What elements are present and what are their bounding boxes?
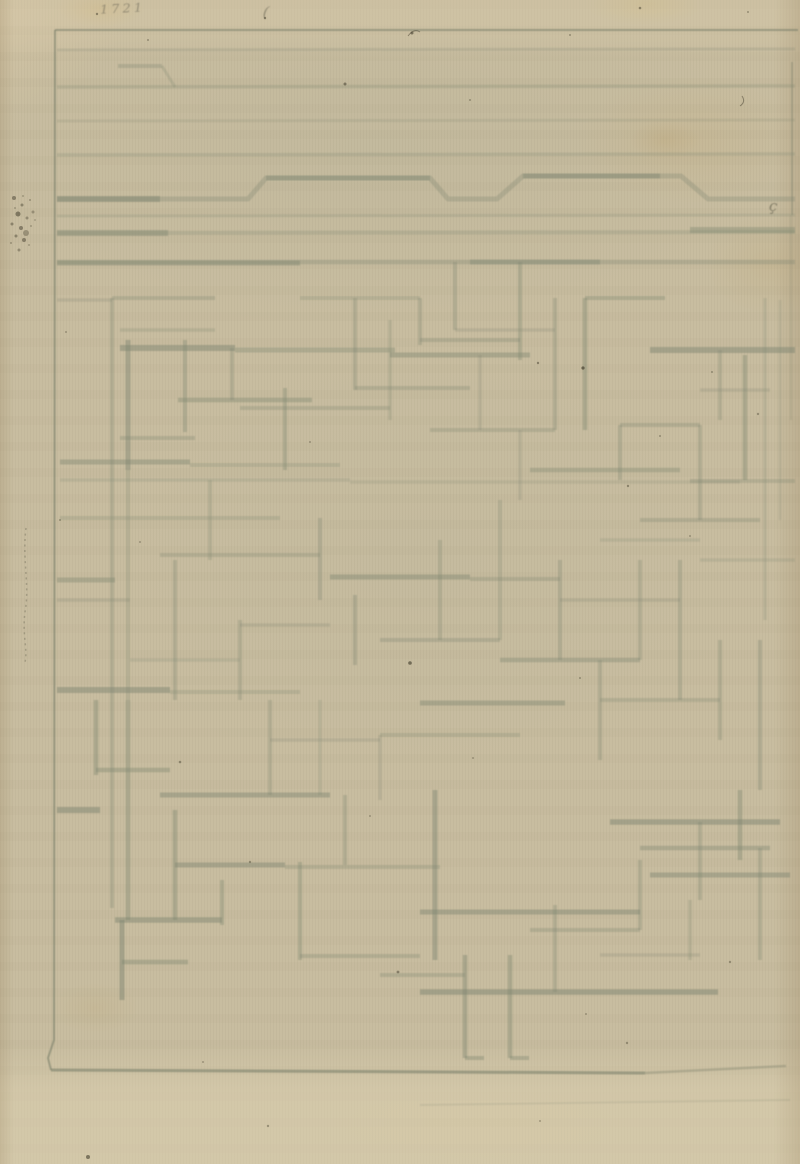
paren-ink-mark: ( bbox=[262, 3, 270, 22]
cedilla-ink-mark: ç bbox=[768, 197, 778, 216]
paper-mottle-texture bbox=[0, 0, 800, 1164]
maze-drawing bbox=[0, 0, 800, 1164]
ink-marks-layer bbox=[0, 0, 800, 1164]
paper-striation-texture bbox=[0, 0, 800, 1164]
scanned-page: 1721 ( ç bbox=[0, 0, 800, 1164]
paper-edge-shading bbox=[0, 0, 800, 1164]
corner-inscription: 1721 bbox=[100, 1, 146, 17]
